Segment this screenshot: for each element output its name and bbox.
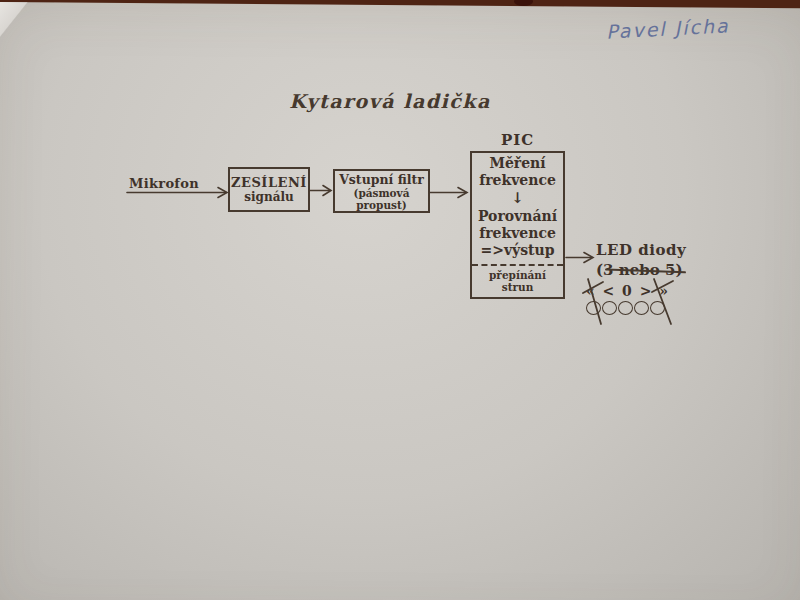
filter-box-line2: (pásmová propust) xyxy=(335,187,428,211)
pic-step2-line1: Porovnání xyxy=(478,208,557,225)
pic-step-measure: Měření frekvence xyxy=(479,155,556,189)
pic-step2-line2: frekvence xyxy=(478,225,557,242)
arrow-pic-to-led xyxy=(566,251,597,264)
arrow-filter-to-pic xyxy=(430,186,471,199)
amplifier-box-line1: ZESÍLENÍ xyxy=(231,175,307,190)
handwritten-name: Pavel Jícha xyxy=(606,11,787,42)
diagram-layer: Pavel Jícha Kytarová ladička Mikrofon ZE… xyxy=(0,0,800,600)
pic-step1-line1: Měření xyxy=(479,155,556,172)
pic-step-compare: Porovnání frekvence =>výstup xyxy=(478,208,557,259)
arrow-amplifier-to-filter xyxy=(310,184,334,197)
arrow-mikrofon-to-amplifier xyxy=(127,186,231,199)
filter-box: Vstupní filtr (pásmová propust) xyxy=(333,169,430,213)
diagram-title: Kytarová ladička xyxy=(240,90,540,112)
amplifier-box: ZESÍLENÍ signálu xyxy=(228,167,310,212)
cross-out-marks xyxy=(580,278,684,330)
filter-box-line1: Vstupní filtr xyxy=(339,172,424,187)
pic-step2-line3: =>výstup xyxy=(478,242,557,259)
pic-box: Měření frekvence ↓ Porovnání frekvence =… xyxy=(470,151,565,299)
led-count-label: (3 nebo 5) xyxy=(596,261,682,279)
amplifier-box-line2: signálu xyxy=(244,190,294,204)
led-count-suffix: ) xyxy=(675,261,682,279)
pic-step1-line2: frekvence xyxy=(479,172,556,189)
pic-footer-label: přepínání strun xyxy=(472,266,563,297)
pic-label: PIC xyxy=(470,131,565,149)
led-output-label: LED diody xyxy=(596,241,686,259)
down-arrow-icon: ↓ xyxy=(511,190,524,207)
